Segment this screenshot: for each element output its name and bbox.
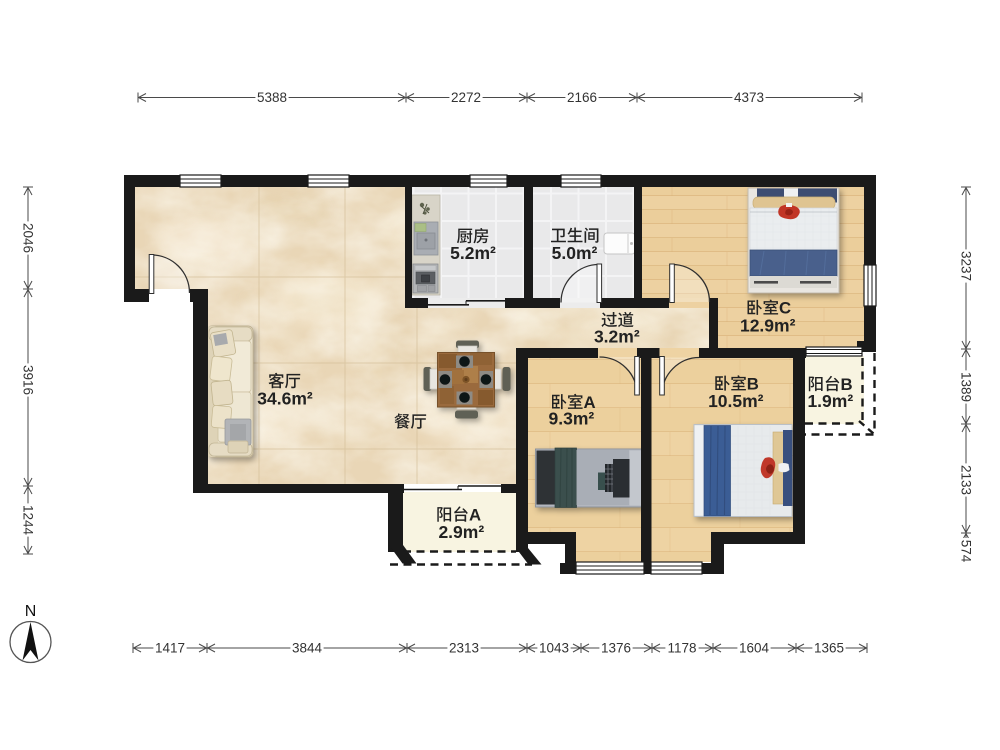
svg-text:1.9m²: 1.9m² — [807, 391, 853, 411]
svg-text:3237: 3237 — [959, 251, 974, 281]
svg-text:2166: 2166 — [567, 90, 597, 105]
svg-text:1178: 1178 — [667, 641, 696, 656]
svg-text:2313: 2313 — [449, 641, 479, 656]
svg-text:1365: 1365 — [814, 641, 844, 656]
svg-text:3.2m²: 3.2m² — [594, 326, 640, 346]
svg-text:5.2m²: 5.2m² — [450, 243, 496, 263]
svg-text:1389: 1389 — [959, 372, 974, 402]
svg-text:1604: 1604 — [739, 641, 770, 656]
svg-text:2133: 2133 — [959, 465, 974, 495]
svg-text:1376: 1376 — [601, 641, 631, 656]
svg-text:4373: 4373 — [734, 90, 764, 105]
svg-text:2046: 2046 — [21, 223, 36, 253]
svg-text:12.9m²: 12.9m² — [740, 316, 796, 336]
svg-text:9.3m²: 9.3m² — [549, 409, 595, 429]
svg-text:5.0m²: 5.0m² — [552, 243, 598, 263]
svg-text:10.5m²: 10.5m² — [708, 391, 764, 411]
svg-text:N: N — [25, 603, 37, 620]
svg-text:1417: 1417 — [155, 641, 185, 656]
svg-text:3916: 3916 — [21, 365, 36, 395]
svg-text:3844: 3844 — [292, 641, 323, 656]
svg-text:2272: 2272 — [451, 90, 481, 105]
svg-text:574: 574 — [959, 540, 974, 563]
svg-text:5388: 5388 — [257, 90, 287, 105]
svg-text:2.9m²: 2.9m² — [438, 522, 484, 542]
svg-text:34.6m²: 34.6m² — [257, 389, 313, 409]
svg-text:1043: 1043 — [539, 641, 569, 656]
svg-text:1244: 1244 — [21, 505, 36, 536]
